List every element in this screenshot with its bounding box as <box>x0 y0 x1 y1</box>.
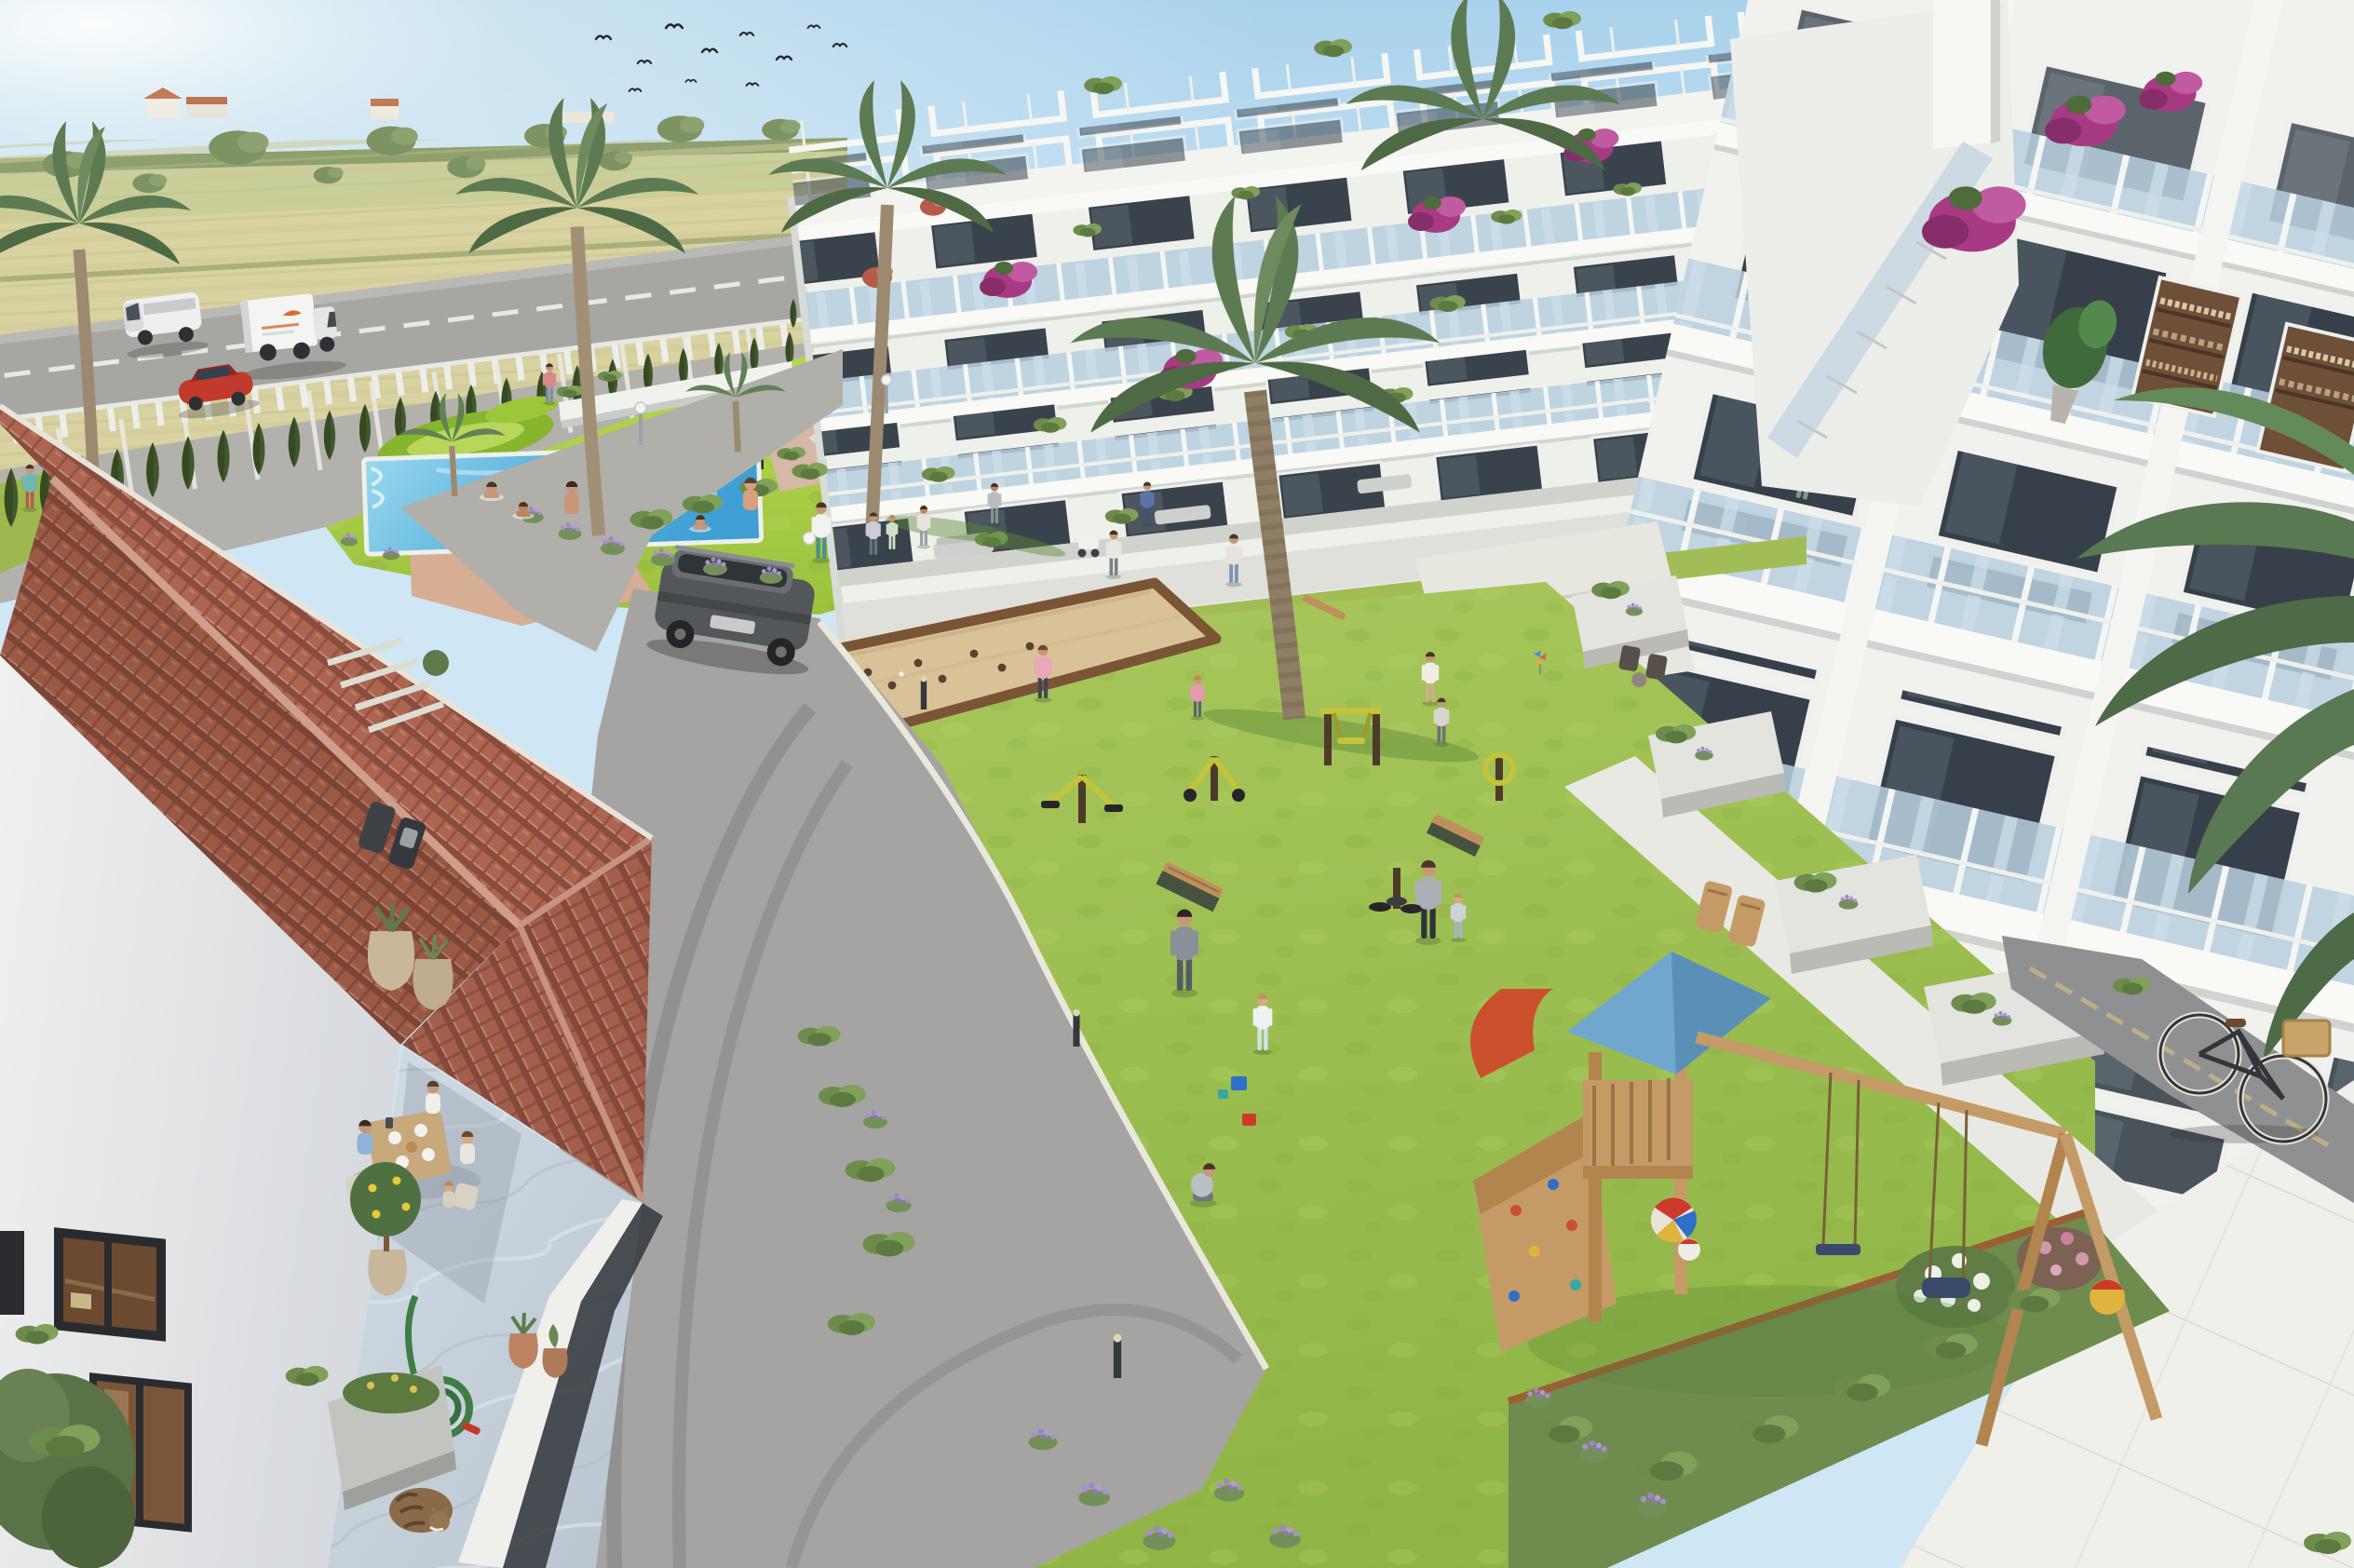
rendered-photo <box>0 0 2354 1568</box>
petanque-jack <box>899 671 904 677</box>
person-pool-wader <box>564 481 579 514</box>
toddler-swing-seat <box>1922 1277 1970 1298</box>
sleeping-cat <box>389 1488 453 1533</box>
wicker-basket <box>2283 1021 2330 1056</box>
bollard-light-1 <box>1073 1009 1079 1047</box>
potted-shrub <box>423 650 449 676</box>
petanque-boule-2 <box>914 659 923 668</box>
scene-canvas <box>0 0 2354 1568</box>
bollard-light-2 <box>1114 1334 1122 1378</box>
petanque-boule-5 <box>998 664 1007 672</box>
petanque-boule-3 <box>939 675 947 683</box>
person-diner-child <box>443 1182 455 1208</box>
swing-seat <box>1816 1244 1860 1255</box>
person-diner-blue-shirt <box>358 1120 373 1155</box>
person-pool-sitter <box>743 478 758 510</box>
petanque-boule-1 <box>888 682 897 690</box>
coffee-pot <box>386 1117 393 1129</box>
person-diner-right <box>460 1131 475 1164</box>
books-on-sill <box>71 1292 91 1309</box>
saddle <box>2225 1019 2246 1027</box>
bread-basket <box>406 1142 417 1153</box>
petanque-boule-4 <box>970 650 979 658</box>
bay-window <box>54 1227 166 1342</box>
bollard-light-0 <box>921 676 927 710</box>
person-diner-top <box>426 1081 440 1114</box>
partial-window <box>0 1231 24 1315</box>
white-van <box>120 291 209 361</box>
petanque-boule-7 <box>1026 642 1035 651</box>
